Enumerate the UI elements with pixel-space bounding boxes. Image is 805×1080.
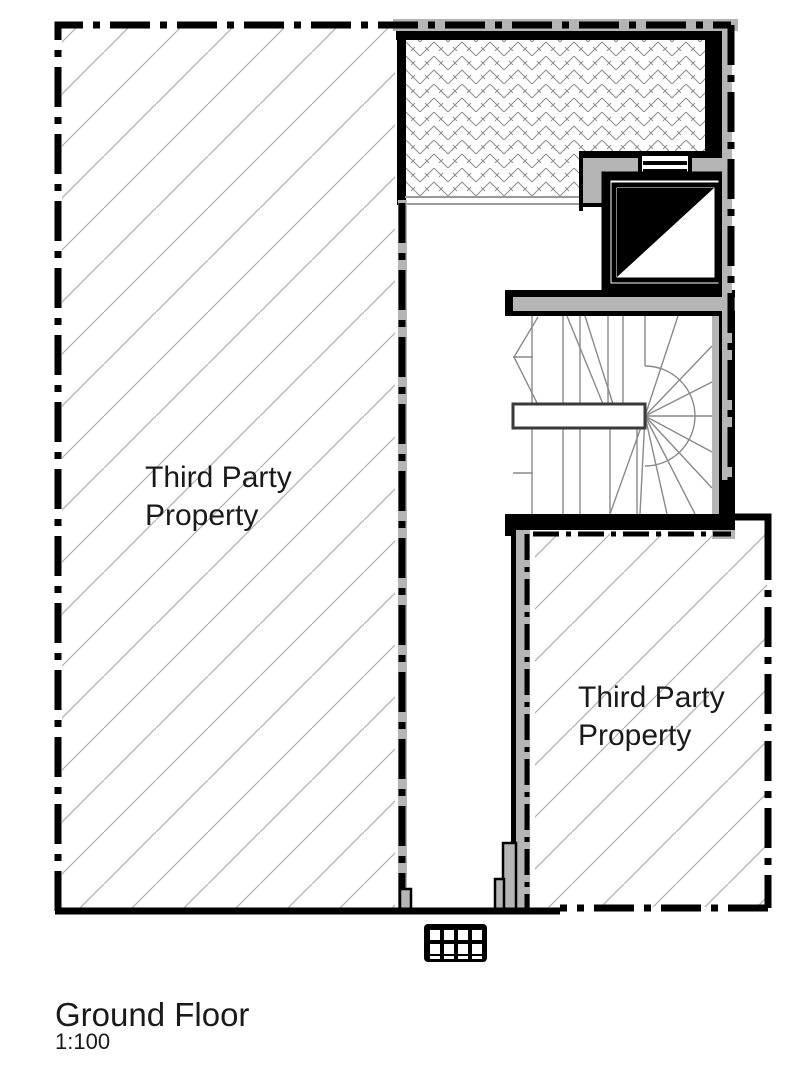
left-property: Third Party Property xyxy=(62,28,395,912)
patio-threshold-step xyxy=(405,197,583,204)
plan-scale: 1:100 xyxy=(55,1029,110,1054)
floor-plan-canvas: Third Party Property xyxy=(0,0,805,1080)
central-passage xyxy=(398,200,411,913)
staircase xyxy=(505,290,735,539)
right-property: Third Party Property xyxy=(495,519,767,912)
title-block: Ground Floor 1:100 xyxy=(55,996,249,1054)
drain-grate xyxy=(424,924,487,962)
lift-lobby-block-bottom-edge xyxy=(583,203,604,207)
stair-right-wall-fill xyxy=(712,316,720,514)
plan-title: Ground Floor xyxy=(55,996,249,1033)
stair-top-wall-cap xyxy=(505,290,513,316)
stair-newel-wall xyxy=(513,404,645,428)
right-property-label-line2: Property xyxy=(578,719,691,752)
lift xyxy=(579,151,727,292)
floor-plan-sheet: Third Party Property xyxy=(0,0,805,1080)
stair-top-wall-inner-edge xyxy=(507,311,735,316)
stair-bottom-wall xyxy=(505,514,735,530)
lift-door-leaf-1 xyxy=(643,161,687,165)
right-property-wall-step-2 xyxy=(495,879,504,912)
stair-top-wall-fill xyxy=(507,297,735,311)
left-property-label-line1: Third Party xyxy=(145,461,292,494)
stair-top-wall-edge xyxy=(505,290,735,297)
lift-lobby-left-block xyxy=(583,158,604,207)
left-property-label-line2: Property xyxy=(145,499,258,532)
right-property-label-line1: Third Party xyxy=(578,681,725,714)
patio-left-wall xyxy=(397,28,406,205)
lift-lobby-left-edge xyxy=(579,151,583,211)
